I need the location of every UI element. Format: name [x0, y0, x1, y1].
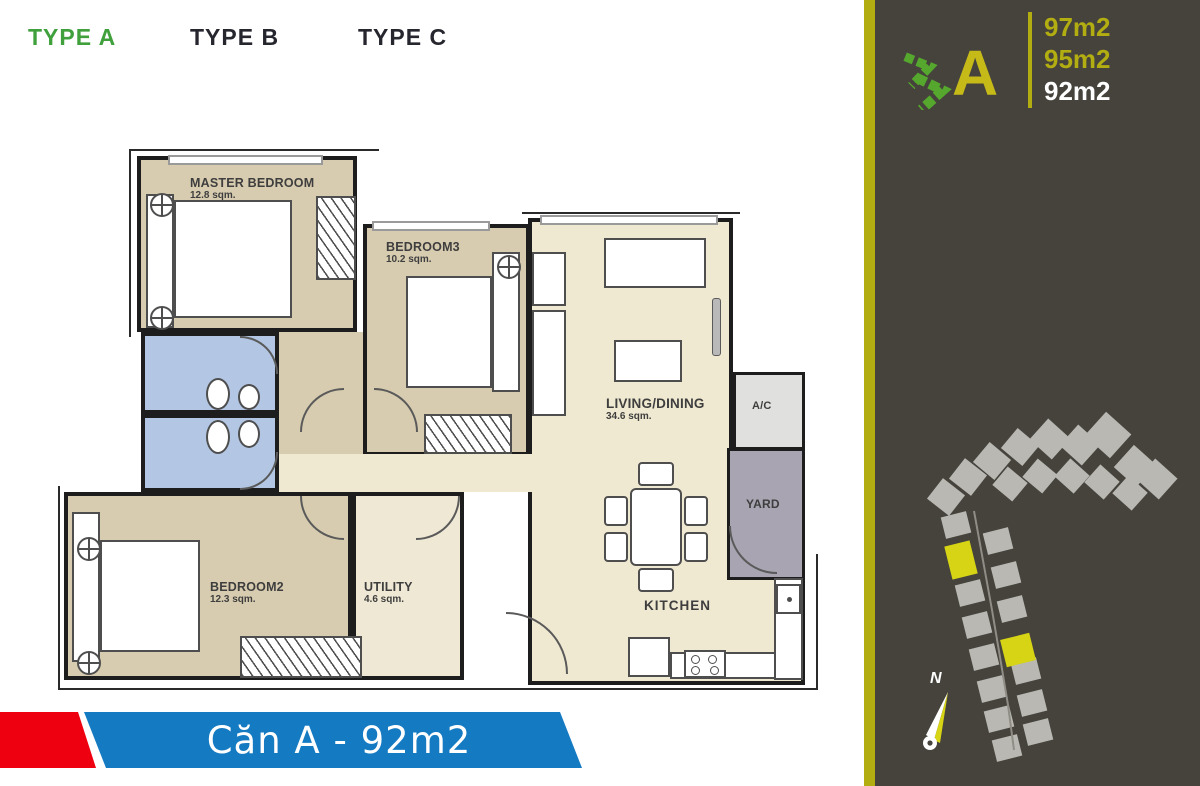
outer-line-left [58, 486, 60, 690]
label-master-bedroom: MASTER BEDROOM 12.8 sqm. [190, 176, 314, 201]
nightstand-strip [72, 512, 100, 662]
window-bedroom3 [372, 221, 490, 231]
banner: Căn A - 92m2 [84, 712, 584, 768]
column-marker [150, 193, 174, 217]
dining-chair [638, 462, 674, 486]
room-name: MASTER BEDROOM [190, 176, 314, 190]
column-marker [77, 537, 101, 561]
dining-chair [684, 532, 708, 562]
room-area: 12.3 sqm. [210, 594, 284, 605]
compass-north-label: N [930, 670, 942, 688]
dining-chair [638, 568, 674, 592]
bed-master [174, 200, 292, 318]
room-name: BEDROOM2 [210, 580, 284, 594]
sink-drain-icon [787, 597, 792, 602]
dining-table [630, 488, 682, 566]
dining-chair [604, 496, 628, 526]
bed-bedroom2 [100, 540, 200, 652]
room-name: YARD [746, 498, 780, 511]
toilet [206, 420, 230, 454]
side-sofa [532, 310, 566, 416]
burner-icon [691, 666, 700, 675]
panel-accent-stripe [864, 0, 875, 786]
dining-chair [684, 496, 708, 526]
sink [238, 420, 260, 448]
room-name: UTILITY [364, 580, 413, 594]
outer-line-left-master [129, 149, 131, 337]
label-ac: A/C [752, 400, 772, 412]
sink [238, 384, 260, 410]
outer-line-top-master [129, 149, 379, 151]
label-bedroom2: BEDROOM2 12.3 sqm. [210, 580, 284, 605]
hallway [279, 454, 532, 492]
column-marker [77, 651, 101, 675]
area-value-92-highlighted: 92m2 [1044, 78, 1111, 104]
room-area: 34.6 sqm. [606, 411, 705, 422]
wardrobe-hatch-bedroom2 [240, 636, 362, 678]
room-name: A/C [752, 400, 772, 412]
entry-door-leaf [712, 298, 721, 356]
column-marker [150, 306, 174, 330]
label-utility: UTILITY 4.6 sqm. [364, 580, 413, 605]
banner-title: Căn A - 92m2 [197, 719, 472, 762]
label-kitchen: KITCHEN [644, 598, 711, 613]
column-marker [497, 255, 521, 279]
label-yard: YARD [746, 498, 780, 511]
double-chevron-icon [903, 50, 953, 110]
type-letter: A [952, 36, 998, 110]
burner-icon [710, 666, 719, 675]
room-area: 4.6 sqm. [364, 594, 413, 605]
kitchen-sink [776, 584, 801, 614]
toilet [206, 378, 230, 410]
highlighted-block-1 [944, 540, 977, 579]
label-bedroom3: BEDROOM3 10.2 sqm. [386, 240, 460, 265]
site-map [880, 405, 1180, 770]
outer-line-top-living [522, 212, 740, 214]
coffee-table [614, 340, 682, 382]
floor-plan: MASTER BEDROOM 12.8 sqm. BEDROOM3 10.2 s… [0, 0, 864, 786]
sofa [604, 238, 706, 288]
room-area: 12.8 sqm. [190, 190, 314, 201]
kitchen-island [628, 637, 670, 677]
stove [684, 650, 726, 678]
compass-icon [923, 692, 948, 750]
burner-icon [691, 655, 700, 664]
panel-divider-line [1028, 12, 1032, 108]
area-value-97: 97m2 [1044, 14, 1111, 40]
outer-line-bottom [58, 688, 818, 690]
window-living [540, 215, 718, 225]
room-name: BEDROOM3 [386, 240, 460, 254]
room-area: 10.2 sqm. [386, 254, 460, 265]
label-living-dining: LIVING/DINING 34.6 sqm. [606, 396, 705, 422]
wardrobe-hatch-master [316, 196, 356, 280]
window-master [168, 155, 323, 165]
armchair [532, 252, 566, 306]
area-value-95: 95m2 [1044, 46, 1111, 72]
wardrobe-hatch-bedroom3 [424, 414, 512, 454]
room-name: LIVING/DINING [606, 396, 705, 411]
burner-icon [708, 655, 717, 664]
outer-line-right [816, 554, 818, 690]
room-name: KITCHEN [644, 598, 711, 613]
dining-chair [604, 532, 628, 562]
bed-bedroom3 [406, 276, 492, 388]
